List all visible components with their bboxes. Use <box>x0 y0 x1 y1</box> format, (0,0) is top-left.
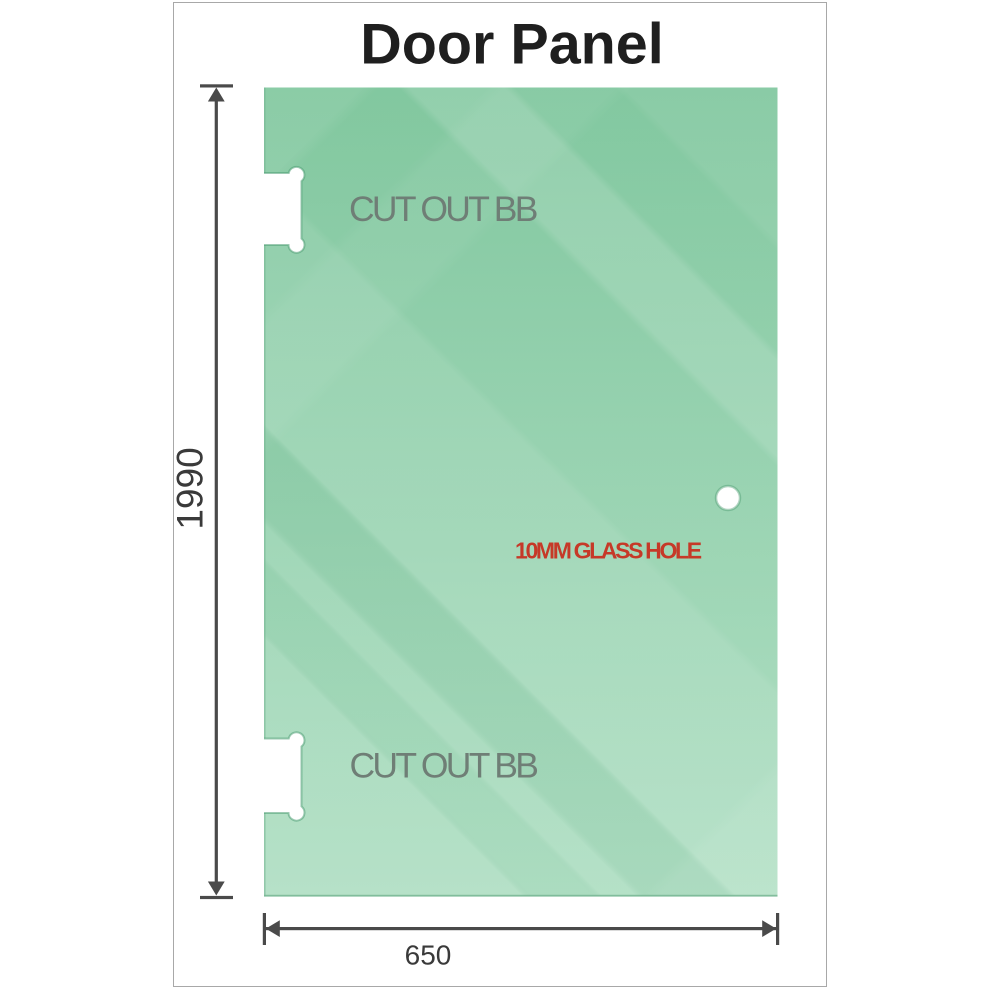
svg-text:650: 650 <box>405 940 452 971</box>
svg-text:CUT OUT BB: CUT OUT BB <box>349 189 537 229</box>
svg-text:10MM GLASS HOLE: 10MM GLASS HOLE <box>515 538 702 564</box>
svg-text:Door Panel: Door Panel <box>360 13 664 77</box>
svg-text:1990: 1990 <box>170 447 211 529</box>
svg-text:CUT OUT BB: CUT OUT BB <box>350 746 538 786</box>
